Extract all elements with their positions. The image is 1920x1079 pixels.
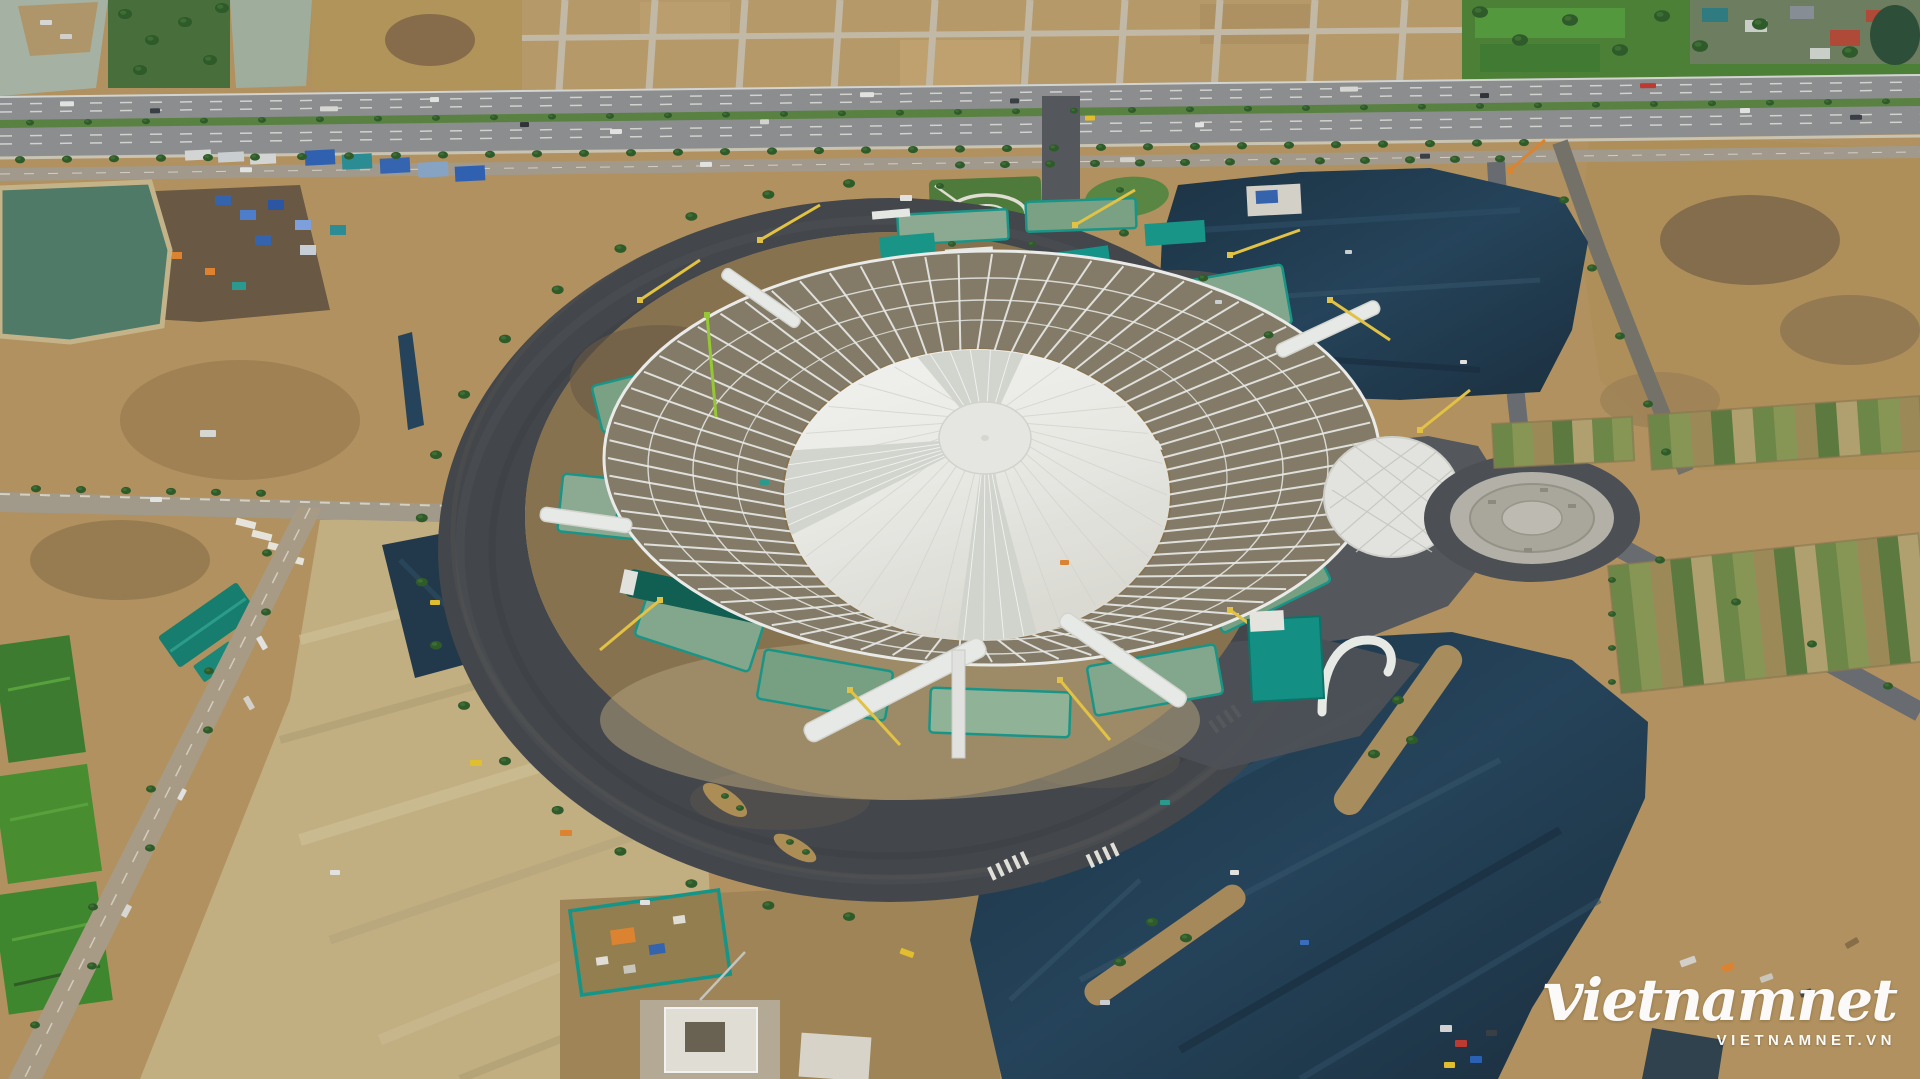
aerial-construction-photo: vietnamnet VIETNAMNET.VN bbox=[0, 0, 1920, 1079]
atmosphere-tint bbox=[0, 0, 1920, 1079]
scene-svg bbox=[0, 0, 1920, 1079]
